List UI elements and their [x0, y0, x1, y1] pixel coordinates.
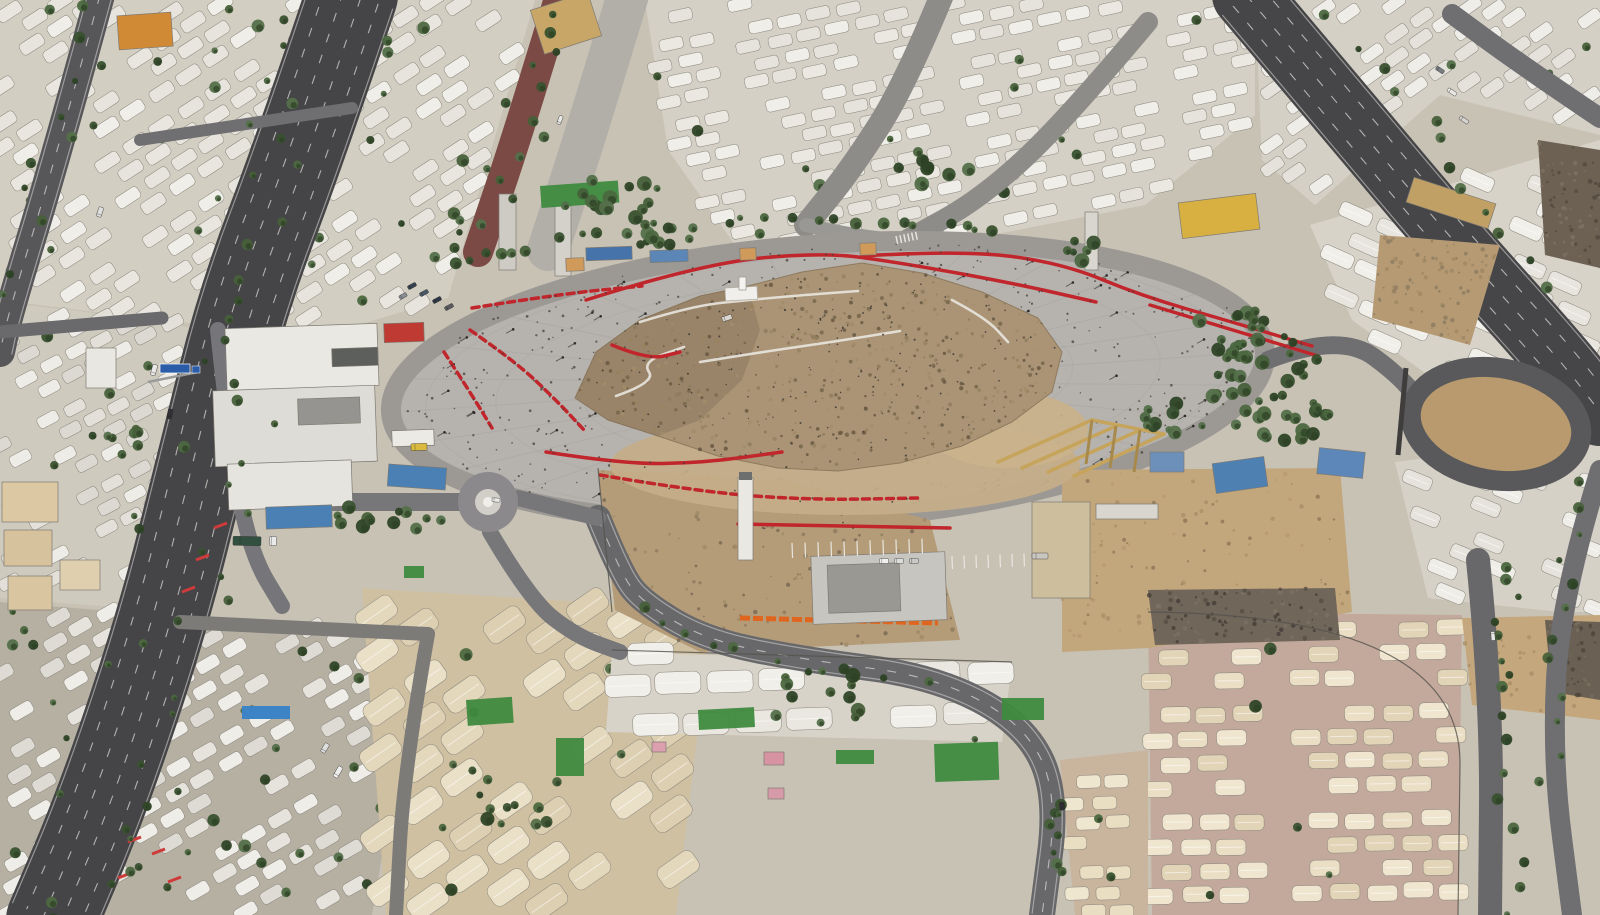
- tree-shadow: [1171, 411, 1178, 418]
- tree-shadow: [279, 137, 284, 142]
- crowd-dot: [1222, 403, 1224, 405]
- rubble-dot: [1383, 236, 1387, 240]
- crowd-dot: [431, 397, 434, 400]
- crowd-dot: [1113, 346, 1115, 348]
- rubble-dot: [1175, 618, 1178, 621]
- rubble-dot: [1453, 243, 1455, 245]
- rock-dot: [911, 309, 914, 312]
- rubble-dot: [1450, 318, 1454, 322]
- crowd-dot: [469, 448, 471, 450]
- rubble-dot: [1574, 171, 1578, 175]
- pilgrim-dot: [1000, 343, 1002, 345]
- rock-dot: [769, 398, 773, 402]
- rock-dot: [755, 374, 757, 376]
- roof-vent: [332, 347, 379, 367]
- rubble-dot: [1223, 634, 1227, 638]
- tree-shadow: [228, 8, 233, 13]
- rubble-dot: [801, 532, 805, 536]
- crowd-dot: [900, 249, 902, 251]
- rubble-dot: [1302, 636, 1307, 641]
- crowd-dot: [552, 337, 553, 338]
- tree-shadow: [60, 116, 64, 120]
- queue-dot: [910, 265, 912, 267]
- rock-dot: [600, 360, 603, 363]
- rock-dot: [923, 356, 925, 358]
- rubble-dot: [691, 593, 694, 596]
- rock-dot: [880, 410, 882, 412]
- rock-dot: [821, 445, 824, 448]
- queue-dot: [764, 527, 766, 529]
- rubble-dot: [1488, 276, 1490, 278]
- vehicle-body: [233, 536, 261, 545]
- tree-shadow: [439, 519, 444, 524]
- crowd-dot: [1117, 343, 1119, 345]
- rubble-dot: [1301, 544, 1304, 547]
- rock-dot: [838, 330, 840, 332]
- rubble-dot: [1573, 622, 1575, 624]
- rock-dot: [701, 415, 705, 419]
- rubble-dot: [1122, 546, 1127, 551]
- rock-dot: [758, 424, 760, 426]
- rock-dot: [806, 284, 810, 288]
- rock-dot: [1022, 359, 1025, 362]
- crowd-dot: [545, 483, 547, 485]
- rock-dot: [793, 312, 797, 316]
- rubble-dot: [1206, 615, 1210, 619]
- rock-dot: [944, 414, 946, 416]
- rubble-dot: [1294, 622, 1296, 624]
- tree-shadow: [1244, 409, 1251, 416]
- rubble-dot: [1393, 257, 1398, 262]
- crowd-dot: [1222, 312, 1223, 313]
- rubble-dot: [1537, 141, 1541, 145]
- rubble-dot: [1563, 241, 1566, 244]
- crowd-dot: [483, 369, 485, 371]
- rock-dot: [868, 352, 871, 355]
- tree-shadow: [2, 293, 6, 297]
- pilgrim-dot: [772, 417, 773, 418]
- rubble-dot: [1570, 235, 1575, 240]
- crowd-dot: [978, 246, 981, 249]
- rubble-dot: [1519, 657, 1522, 660]
- rubble-dot: [1137, 614, 1142, 619]
- rock-dot: [933, 308, 937, 312]
- rock-dot: [849, 360, 853, 364]
- tree-shadow: [1211, 394, 1219, 402]
- tree-shadow: [471, 770, 475, 774]
- queue-dot: [642, 360, 644, 362]
- rubble-dot: [1571, 677, 1573, 679]
- rock-dot: [621, 412, 625, 416]
- rubble-dot: [1399, 261, 1403, 265]
- crowd-dot: [474, 378, 476, 380]
- rubble-dot: [1295, 604, 1298, 607]
- rock-dot: [911, 361, 913, 363]
- pilgrim-dot: [842, 326, 844, 328]
- crowd-dot: [1158, 379, 1160, 381]
- rock-dot: [966, 416, 969, 419]
- tree-shadow: [552, 14, 556, 18]
- pilgrim-dot: [800, 422, 802, 424]
- crowd-dot: [895, 244, 896, 245]
- crowd-dot: [499, 469, 501, 471]
- crowd-dot: [407, 410, 409, 412]
- crowd-dot: [761, 277, 763, 279]
- pilgrim-dot: [731, 368, 733, 370]
- crowd-dot: [594, 293, 596, 295]
- rock-dot: [947, 349, 951, 353]
- rock-dot: [831, 369, 834, 372]
- tree-shadow: [641, 208, 647, 214]
- crowd-dot: [545, 433, 547, 435]
- queue-dot: [577, 421, 579, 423]
- rubble-dot: [1176, 599, 1180, 603]
- tree-shadow: [633, 216, 641, 224]
- pink-building-2: [768, 788, 784, 799]
- tree-shadow: [140, 763, 144, 767]
- rock-dot: [740, 326, 742, 328]
- rubble-dot: [1438, 269, 1441, 272]
- rubble-dot: [781, 532, 784, 535]
- rubble-dot: [1557, 196, 1559, 198]
- tree-shadow: [464, 653, 471, 660]
- rubble-dot: [1595, 228, 1597, 230]
- crowd-dot: [1088, 330, 1090, 332]
- rubble-dot: [1243, 588, 1247, 592]
- tree-shadow: [1283, 439, 1290, 446]
- rubble-dot: [1224, 629, 1227, 632]
- queue-dot: [1027, 260, 1029, 262]
- rock-dot: [706, 388, 709, 391]
- rock-dot: [811, 335, 815, 339]
- tree-shadow: [848, 696, 855, 703]
- tree-shadow: [1144, 416, 1150, 422]
- pilgrim-dot: [863, 431, 864, 432]
- rubble-dot: [770, 576, 772, 578]
- tree-shadow: [732, 646, 738, 652]
- rubble-dot: [1194, 630, 1197, 633]
- tree-shadow: [1216, 348, 1224, 356]
- rock-dot: [1024, 388, 1028, 392]
- queue-dot: [929, 247, 931, 249]
- rock-dot: [886, 283, 889, 286]
- tree-shadow: [386, 51, 392, 57]
- rock-dot: [667, 434, 669, 436]
- queue-dot: [1199, 309, 1201, 311]
- tree-shadow: [1501, 660, 1505, 664]
- crowd-dot: [1153, 311, 1155, 313]
- tree-shadow: [1505, 566, 1511, 572]
- crowd-dot: [1150, 395, 1152, 397]
- rock-dot: [956, 359, 958, 361]
- rubble-dot: [1479, 275, 1483, 279]
- rubble-dot: [1211, 591, 1213, 593]
- rubble-dot: [856, 634, 859, 637]
- rubble-dot: [1250, 632, 1253, 635]
- rubble-dot: [1455, 257, 1458, 260]
- rock-dot: [820, 388, 824, 392]
- rock-dot: [993, 386, 996, 389]
- rubble-dot: [1594, 182, 1597, 185]
- rock-dot: [598, 358, 600, 360]
- pilgrim-dot: [860, 369, 861, 370]
- rubble-dot: [1333, 518, 1335, 520]
- tree-shadow: [125, 828, 130, 833]
- rubble-dot: [1444, 270, 1448, 274]
- tree-shadow: [805, 168, 809, 172]
- tree-shadow: [301, 650, 306, 655]
- tree-shadow: [392, 521, 399, 528]
- crowd-dot: [1129, 408, 1131, 410]
- rubble-dot: [1523, 652, 1526, 655]
- rock-dot: [625, 375, 629, 379]
- rubble-dot: [1205, 522, 1208, 525]
- tree-shadow: [656, 188, 660, 192]
- rubble-dot: [1120, 472, 1122, 474]
- rock-dot: [820, 330, 824, 334]
- light-pole: [512, 328, 515, 331]
- rubble-dot: [696, 518, 700, 522]
- pilgrim-dot: [631, 370, 632, 371]
- turf-patch: [466, 697, 514, 726]
- rock-dot: [688, 407, 691, 410]
- rubble-dot: [651, 585, 654, 588]
- crowd-dot: [1181, 298, 1183, 300]
- tree-shadow: [425, 517, 430, 522]
- crowd-dot: [1225, 381, 1228, 384]
- pilgrim-dot: [1030, 336, 1032, 338]
- rubble-dot: [733, 609, 735, 611]
- queue-dot: [760, 451, 762, 453]
- tree-shadow: [1289, 353, 1293, 357]
- rock-dot: [1050, 365, 1053, 368]
- rock-dot: [913, 355, 916, 358]
- rock-dot: [959, 353, 963, 357]
- rubble-dot: [1577, 693, 1581, 697]
- tree-shadow: [791, 217, 796, 222]
- rock-dot: [945, 335, 949, 339]
- crowd-dot: [531, 349, 533, 351]
- tree-shadow: [201, 551, 205, 555]
- tree-shadow: [653, 222, 657, 226]
- pilgrim-dot: [647, 413, 649, 415]
- tree-shadow: [1564, 607, 1569, 612]
- rubble-dot: [1582, 678, 1586, 682]
- pilgrim-dot: [691, 392, 693, 394]
- crowd-dot: [561, 432, 563, 434]
- rubble-dot: [1281, 601, 1283, 603]
- rubble-dot: [1288, 603, 1291, 606]
- rock-dot: [680, 377, 684, 381]
- rubble-dot: [1087, 613, 1090, 616]
- rubble-dot: [1144, 522, 1147, 525]
- tree-shadow: [1577, 506, 1583, 512]
- queue-dot: [745, 454, 747, 456]
- rubble-dot: [702, 545, 707, 550]
- tree-shadow: [850, 684, 855, 689]
- light-pole: [1192, 425, 1195, 428]
- pilgrim-dot: [905, 334, 907, 336]
- rubble-dot: [921, 628, 923, 630]
- crowd-dot: [973, 266, 975, 268]
- crowd-dot: [538, 428, 540, 430]
- crowd-dot: [667, 294, 669, 296]
- rubble-dot: [1296, 589, 1298, 591]
- rock-dot: [609, 369, 612, 372]
- queue-dot: [666, 357, 668, 359]
- tree-shadow: [542, 136, 548, 142]
- rock-dot: [988, 308, 991, 311]
- rubble-dot: [1226, 619, 1229, 622]
- queue-dot: [454, 373, 456, 375]
- rock-dot: [855, 358, 858, 361]
- rubble-dot: [1584, 249, 1588, 253]
- rubble-dot: [1573, 179, 1576, 182]
- crowd-dot: [1089, 398, 1092, 401]
- rock-dot: [901, 342, 903, 344]
- rock-dot: [813, 299, 817, 303]
- tree-shadow: [1448, 166, 1454, 172]
- tree-shadow: [225, 844, 231, 850]
- crowd-dot: [1191, 345, 1193, 347]
- rock-dot: [920, 301, 923, 304]
- crowd-dot: [1071, 340, 1074, 343]
- crowd-dot: [677, 296, 679, 298]
- rock-dot: [946, 444, 949, 447]
- rock-dot: [882, 348, 884, 350]
- tree-shadow: [1255, 338, 1263, 346]
- crowd-dot: [541, 487, 543, 489]
- rubble-dot: [1288, 498, 1291, 501]
- tree-shadow: [138, 527, 143, 532]
- queue-dot: [842, 522, 844, 524]
- rock-dot: [616, 371, 618, 373]
- rubble-dot: [1072, 634, 1075, 637]
- rock-dot: [862, 294, 864, 296]
- pilgrim-dot: [929, 365, 931, 367]
- crowd-dot: [1031, 303, 1033, 305]
- rock-dot: [863, 306, 865, 308]
- tree-shadow: [581, 192, 587, 198]
- crowd-dot: [580, 299, 582, 301]
- rubble-dot: [763, 546, 765, 548]
- rubble-dot: [1240, 609, 1245, 614]
- minaret-cap: [739, 472, 752, 480]
- rock-dot: [768, 386, 770, 388]
- rock-dot: [767, 358, 769, 360]
- crowd-dot: [1114, 278, 1117, 281]
- rubble-dot: [1247, 591, 1251, 595]
- rock-dot: [885, 358, 889, 362]
- rubble-dot: [1304, 587, 1308, 591]
- tree-shadow: [1085, 249, 1090, 254]
- rock-dot: [795, 397, 797, 399]
- rubble-dot: [1582, 670, 1584, 672]
- tree-shadow: [12, 611, 16, 615]
- tree-shadow: [485, 252, 490, 257]
- rock-dot: [849, 301, 853, 305]
- tree-shadow: [1519, 886, 1525, 892]
- rock-dot: [674, 408, 677, 411]
- rubble-dot: [1324, 625, 1326, 627]
- pilgrim-dot: [968, 424, 970, 426]
- gray-building-core: [827, 563, 901, 613]
- scene-svg: [0, 0, 1600, 915]
- tree-shadow: [137, 866, 141, 870]
- rubble-dot: [1510, 693, 1514, 697]
- rubble-dot: [1443, 321, 1447, 325]
- rubble-dot: [1119, 629, 1121, 631]
- tree-shadow: [1523, 861, 1529, 867]
- rock-dot: [764, 430, 767, 433]
- rock-dot: [638, 381, 640, 383]
- rock-dot: [850, 297, 852, 299]
- light-pole: [921, 262, 924, 265]
- rock-dot: [799, 286, 802, 289]
- rock-dot: [831, 381, 833, 383]
- pilgrim-dot: [874, 376, 876, 378]
- rock-dot: [619, 370, 623, 374]
- tree-shadow: [500, 823, 504, 827]
- pilgrim-dot: [815, 401, 817, 403]
- rubble-dot: [910, 529, 914, 533]
- rock-dot: [823, 384, 825, 386]
- rubble-dot: [1077, 634, 1081, 638]
- tree-shadow: [774, 714, 780, 720]
- tree-shadow: [688, 238, 693, 243]
- tree-shadow: [1560, 696, 1565, 701]
- crowd-dot: [588, 414, 590, 416]
- rubble-dot: [1431, 240, 1434, 243]
- vehicle-body: [1032, 553, 1048, 559]
- rubble-dot: [1158, 628, 1160, 630]
- rock-dot: [832, 433, 835, 436]
- rubble-dot: [1168, 591, 1172, 595]
- rock-dot: [840, 406, 844, 410]
- tree-shadow: [454, 262, 461, 269]
- parking-stripe: [870, 540, 871, 555]
- pilgrim-dot: [791, 443, 793, 445]
- rock-dot: [1044, 391, 1047, 394]
- tent: [1081, 904, 1105, 915]
- rubble-dot: [1470, 279, 1472, 281]
- rubble-dot: [1539, 709, 1542, 712]
- queue-dot: [553, 452, 555, 454]
- queue-dot: [644, 360, 646, 362]
- tree-shadow: [247, 512, 251, 516]
- tree-shadow: [52, 702, 56, 706]
- crowd-dot: [1066, 319, 1068, 321]
- rock-dot: [919, 397, 921, 399]
- tree-shadow: [11, 644, 17, 650]
- rock-dot: [865, 428, 868, 431]
- tree-shadow: [1197, 319, 1205, 327]
- rock-dot: [675, 393, 679, 397]
- rock-dot: [1003, 302, 1006, 305]
- pilgrim-dot: [718, 335, 720, 337]
- tree-shadow: [1285, 414, 1291, 420]
- queue-dot: [1132, 291, 1134, 293]
- rock-dot: [649, 348, 651, 350]
- vehicle-body: [895, 559, 904, 564]
- rubble-dot: [1568, 173, 1570, 175]
- rock-dot: [673, 437, 676, 440]
- rock-dot: [1017, 365, 1021, 369]
- rock-dot: [1004, 357, 1007, 360]
- rubble-dot: [1383, 287, 1385, 289]
- queue-dot: [668, 488, 670, 490]
- rubble-dot: [1187, 621, 1190, 624]
